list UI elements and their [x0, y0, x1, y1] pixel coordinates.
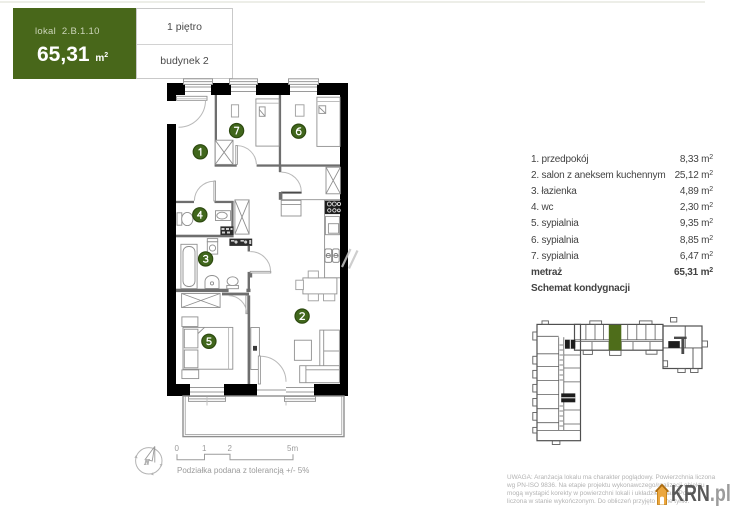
svg-text:1: 1	[202, 444, 207, 453]
svg-text:0: 0	[175, 444, 180, 453]
svg-text:N: N	[144, 459, 150, 467]
svg-text:2: 2	[228, 444, 233, 453]
svg-text:5m: 5m	[287, 444, 298, 453]
